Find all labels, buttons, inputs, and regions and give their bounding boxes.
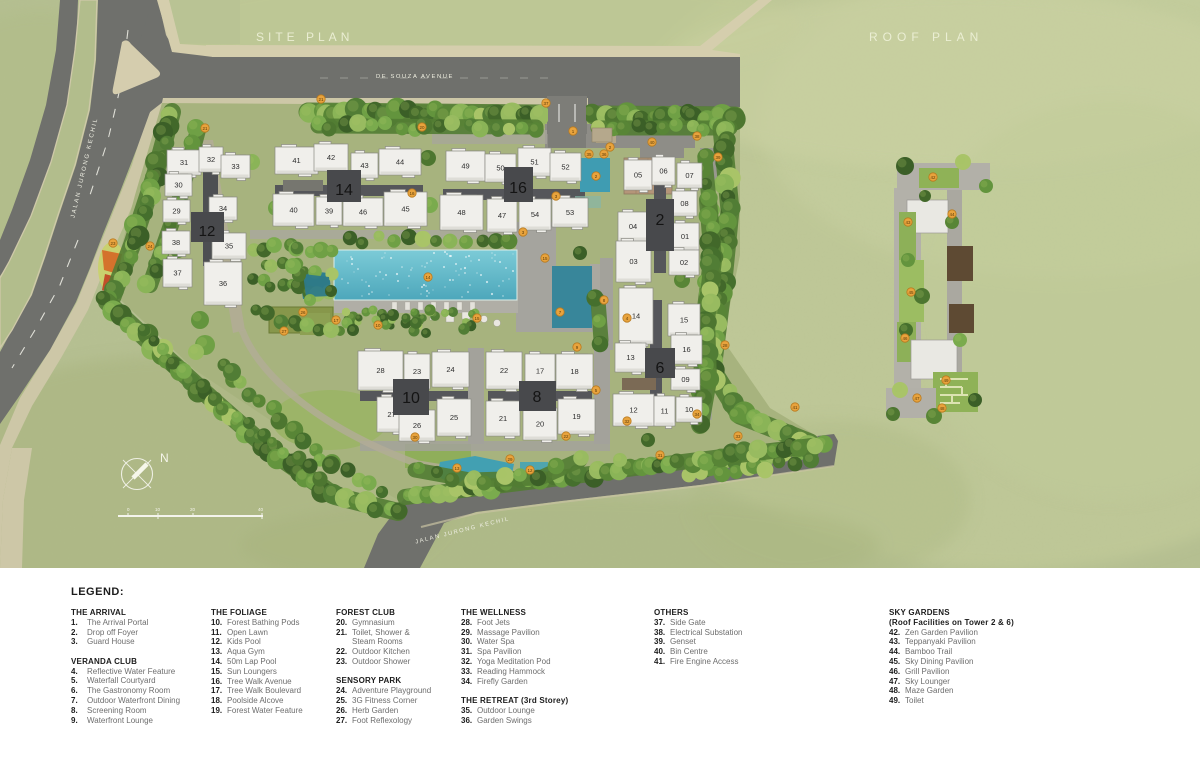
svg-text:ROOF PLAN: ROOF PLAN	[869, 30, 983, 44]
svg-text:45: 45	[401, 205, 409, 214]
svg-text:26: 26	[300, 310, 306, 315]
svg-text:43: 43	[360, 161, 368, 170]
svg-text:05: 05	[634, 171, 642, 180]
svg-text:22: 22	[563, 434, 569, 439]
svg-text:18: 18	[570, 367, 578, 376]
svg-text:49: 49	[461, 162, 469, 171]
svg-text:29: 29	[172, 207, 180, 216]
svg-text:21: 21	[202, 126, 208, 131]
svg-text:16: 16	[409, 191, 415, 196]
svg-text:39: 39	[715, 155, 721, 160]
svg-text:09: 09	[681, 375, 689, 384]
svg-text:32: 32	[624, 419, 630, 424]
svg-text:20: 20	[190, 507, 196, 512]
svg-text:51: 51	[530, 158, 538, 167]
svg-text:17: 17	[333, 318, 339, 323]
svg-text:04: 04	[629, 222, 637, 231]
svg-text:14: 14	[425, 275, 431, 280]
svg-text:36: 36	[601, 152, 607, 157]
svg-text:6: 6	[656, 360, 665, 377]
svg-text:35: 35	[586, 152, 592, 157]
svg-text:12: 12	[629, 406, 637, 415]
svg-text:41: 41	[292, 156, 300, 165]
svg-text:01: 01	[681, 232, 689, 241]
svg-text:13: 13	[454, 466, 460, 471]
svg-text:15: 15	[680, 316, 688, 325]
svg-text:2: 2	[656, 212, 665, 229]
svg-text:42: 42	[327, 153, 335, 162]
svg-text:21: 21	[318, 97, 324, 102]
svg-text:40: 40	[258, 507, 264, 512]
svg-text:N: N	[160, 451, 169, 465]
svg-text:12: 12	[527, 468, 533, 473]
svg-text:21: 21	[499, 414, 507, 423]
svg-text:10: 10	[155, 507, 161, 512]
svg-text:49: 49	[943, 378, 949, 383]
svg-text:8: 8	[533, 389, 542, 406]
svg-text:50: 50	[496, 164, 504, 173]
svg-text:42: 42	[930, 175, 936, 180]
svg-text:27: 27	[281, 329, 287, 334]
svg-text:10: 10	[402, 390, 420, 407]
svg-text:10: 10	[685, 405, 693, 414]
svg-text:15: 15	[542, 256, 548, 261]
svg-text:14: 14	[335, 182, 353, 199]
svg-text:22: 22	[500, 366, 508, 375]
svg-text:36: 36	[219, 279, 227, 288]
svg-text:47: 47	[914, 396, 920, 401]
svg-text:12: 12	[199, 223, 216, 240]
svg-text:46: 46	[902, 336, 908, 341]
svg-text:02: 02	[680, 258, 688, 267]
svg-text:14: 14	[632, 312, 640, 321]
svg-text:11: 11	[661, 407, 669, 416]
svg-text:37: 37	[173, 269, 181, 278]
svg-text:08: 08	[680, 199, 688, 208]
svg-text:31: 31	[180, 158, 188, 167]
svg-text:03: 03	[629, 257, 637, 266]
svg-text:16: 16	[682, 345, 690, 354]
svg-text:44: 44	[396, 158, 404, 167]
svg-text:39: 39	[325, 207, 333, 216]
svg-text:54: 54	[531, 210, 539, 219]
svg-text:45: 45	[908, 290, 914, 295]
svg-text:SITE PLAN: SITE PLAN	[256, 30, 353, 44]
svg-text:24: 24	[446, 365, 454, 374]
svg-text:16: 16	[509, 180, 527, 197]
svg-text:40: 40	[649, 140, 655, 145]
svg-text:40: 40	[289, 206, 297, 215]
svg-text:48: 48	[939, 406, 945, 411]
svg-text:38: 38	[694, 134, 700, 139]
svg-text:20: 20	[419, 125, 425, 130]
svg-text:10: 10	[375, 323, 381, 328]
svg-text:13: 13	[626, 353, 634, 362]
svg-text:29: 29	[507, 457, 513, 462]
svg-text:41: 41	[792, 405, 798, 410]
svg-text:53: 53	[566, 208, 574, 217]
svg-text:23: 23	[413, 367, 421, 376]
svg-text:33: 33	[231, 162, 239, 171]
svg-text:15: 15	[474, 316, 480, 321]
svg-text:23: 23	[110, 241, 116, 246]
svg-text:35: 35	[225, 242, 233, 251]
svg-text:31: 31	[657, 453, 663, 458]
svg-text:30: 30	[174, 181, 182, 190]
svg-text:28: 28	[722, 343, 728, 348]
svg-text:26: 26	[413, 421, 421, 430]
svg-text:17: 17	[536, 367, 544, 376]
svg-text:28: 28	[376, 366, 384, 375]
svg-text:24: 24	[147, 244, 153, 249]
svg-text:37: 37	[543, 101, 549, 106]
svg-text:33: 33	[735, 434, 741, 439]
svg-text:44: 44	[949, 212, 955, 217]
svg-text:DE SOUZA AVENUE: DE SOUZA AVENUE	[376, 74, 454, 80]
svg-text:46: 46	[359, 208, 367, 217]
svg-text:38: 38	[172, 238, 180, 247]
svg-text:20: 20	[536, 420, 544, 429]
svg-text:48: 48	[457, 208, 465, 217]
svg-text:34: 34	[219, 204, 227, 213]
svg-text:43: 43	[905, 220, 911, 225]
svg-text:32: 32	[207, 155, 215, 164]
svg-text:34: 34	[694, 412, 700, 417]
svg-text:06: 06	[659, 167, 667, 176]
svg-text:25: 25	[450, 413, 458, 422]
svg-text:30: 30	[412, 435, 418, 440]
svg-text:52: 52	[561, 163, 569, 172]
svg-text:47: 47	[498, 211, 506, 220]
svg-text:19: 19	[572, 412, 580, 421]
svg-text:07: 07	[685, 171, 693, 180]
